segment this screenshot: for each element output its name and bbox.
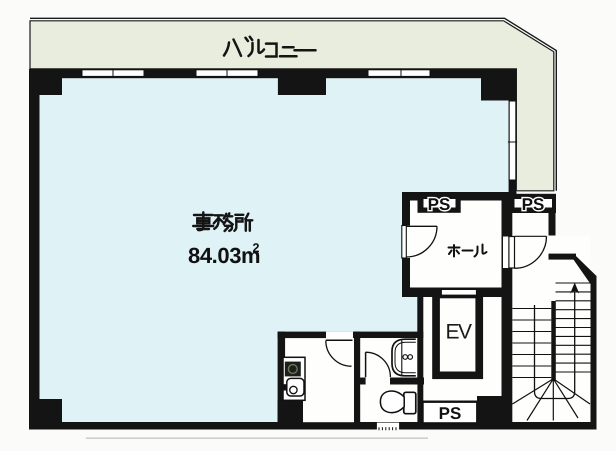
svg-text:PS: PS xyxy=(522,195,545,214)
svg-text:EV: EV xyxy=(445,321,472,344)
svg-text:84.03m: 84.03m xyxy=(188,243,260,268)
svg-text:2: 2 xyxy=(253,241,260,255)
svg-text:PS: PS xyxy=(428,195,451,214)
svg-text:PS: PS xyxy=(439,404,462,423)
